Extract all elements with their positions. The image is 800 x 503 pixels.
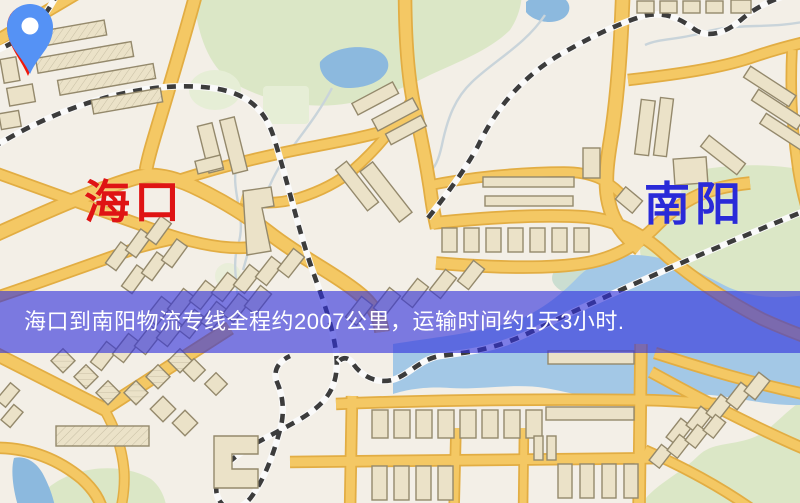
map-screenshot: 海口 南阳 海口到南阳物流专线全程约2007公里，运输时间约1天3小时.: [0, 0, 800, 503]
route-info-banner: 海口到南阳物流专线全程约2007公里，运输时间约1天3小时.: [0, 291, 800, 353]
origin-city-label: 海口: [84, 179, 184, 225]
map-canvas[interactable]: [0, 0, 800, 503]
route-info-text: 海口到南阳物流专线全程约2007公里，运输时间约1天3小时.: [0, 291, 800, 353]
destination-pin-icon[interactable]: [0, 0, 60, 80]
destination-city-label: 南阳: [644, 181, 746, 227]
